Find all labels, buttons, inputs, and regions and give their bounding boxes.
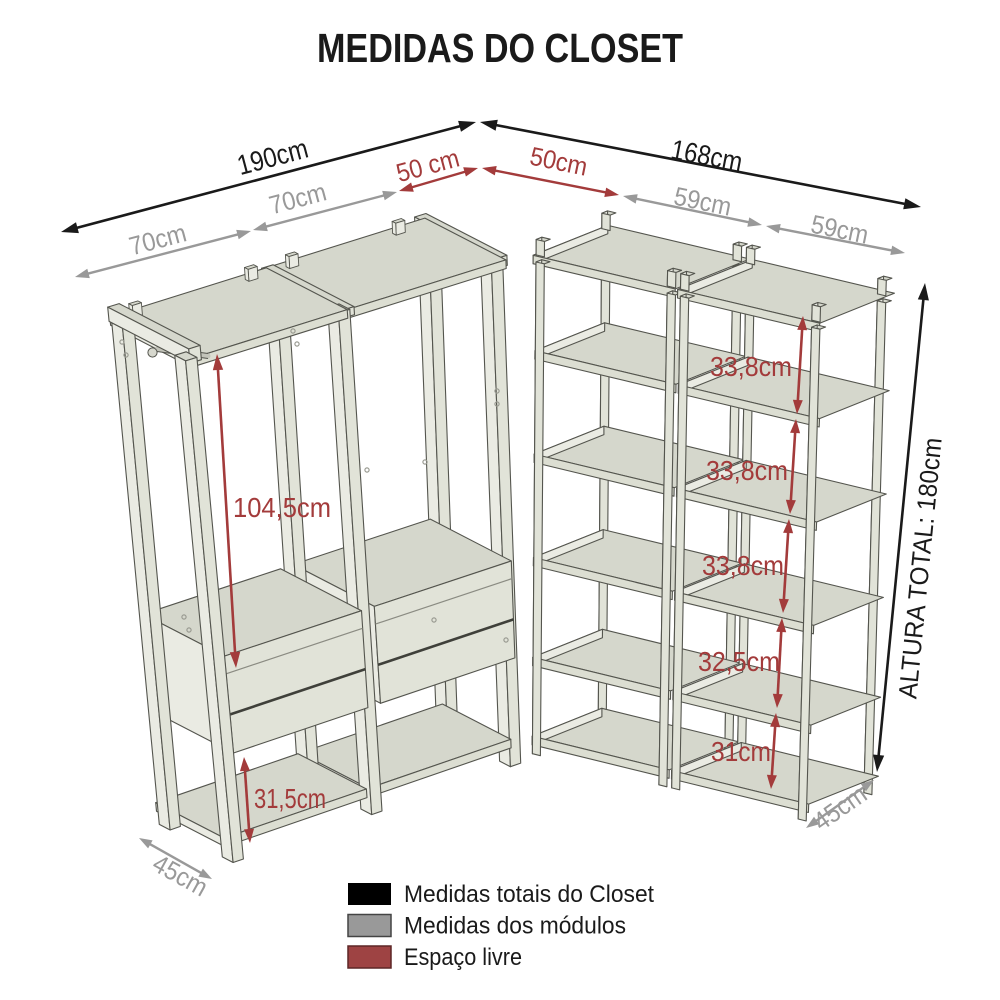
svg-text:33,8cm: 33,8cm	[710, 351, 792, 382]
svg-text:33,8cm: 33,8cm	[702, 550, 784, 581]
svg-text:31,5cm: 31,5cm	[254, 783, 326, 814]
svg-text:Medidas totais do Closet: Medidas totais do Closet	[404, 881, 654, 908]
svg-text:32,5cm: 32,5cm	[698, 646, 780, 677]
svg-text:31cm: 31cm	[711, 736, 771, 767]
svg-text:MEDIDAS DO CLOSET: MEDIDAS DO CLOSET	[317, 25, 683, 71]
svg-text:Medidas dos módulos: Medidas dos módulos	[404, 913, 626, 940]
svg-text:33,8cm: 33,8cm	[706, 455, 788, 486]
svg-text:Espaço livre: Espaço livre	[404, 944, 522, 971]
svg-text:104,5cm: 104,5cm	[233, 492, 331, 523]
